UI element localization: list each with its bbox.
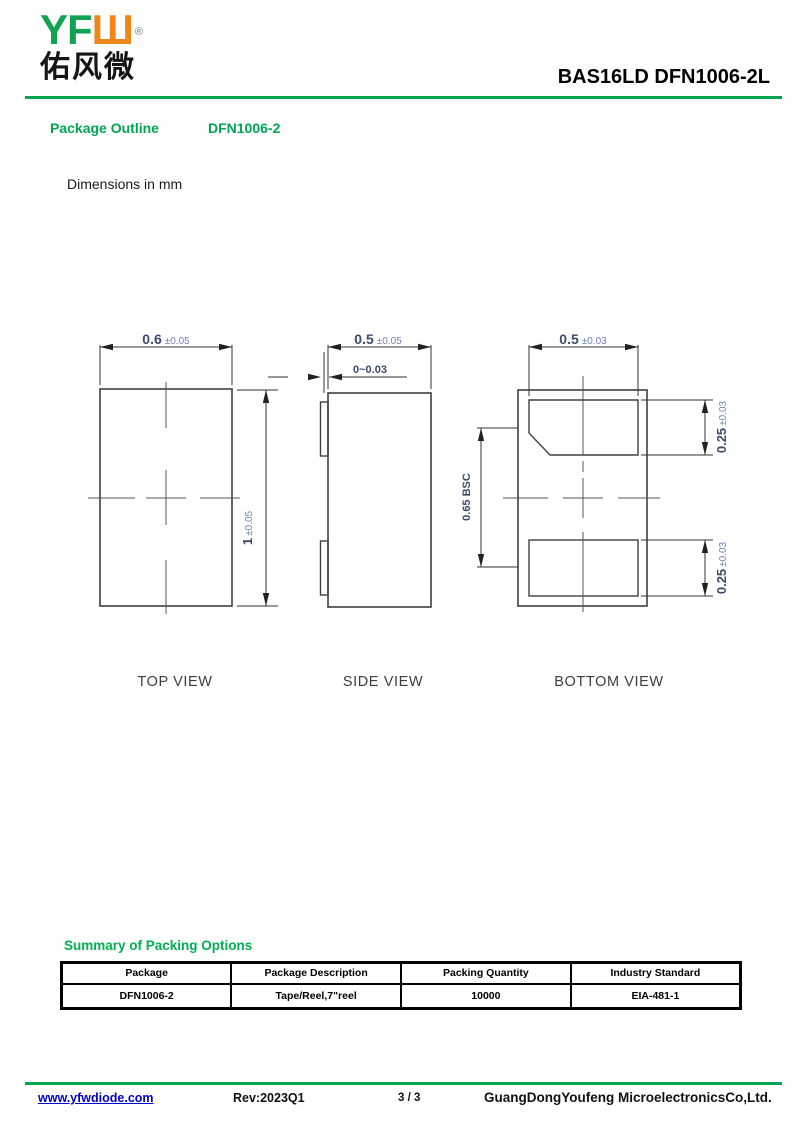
- arrowhead-icon: [328, 344, 341, 350]
- top-view-height-dimension: 1±0.05: [240, 510, 255, 545]
- side-view-body-outline: [328, 393, 431, 607]
- column-header-package: Package: [62, 963, 232, 984]
- page-number: 3 / 3: [398, 1092, 420, 1104]
- top-view-width-dimension-lines: [100, 345, 232, 385]
- company-logo: YFШ® 佑风微: [40, 8, 140, 84]
- side-view-width-dimension: 0.5±0.05: [354, 331, 402, 347]
- registered-trademark-icon: ®: [135, 26, 142, 38]
- header-divider: [25, 96, 782, 99]
- arrowhead-icon: [219, 344, 232, 350]
- bottom-view-width-dimension: 0.5±0.03: [559, 331, 607, 347]
- arrowhead-icon: [478, 554, 484, 567]
- column-header-quantity: Packing Quantity: [401, 963, 571, 984]
- arrowhead-icon: [263, 390, 269, 403]
- arrowhead-icon: [100, 344, 113, 350]
- logo-chinese-name: 佑风微: [40, 52, 140, 84]
- packing-options-heading: Summary of Packing Options: [64, 938, 252, 953]
- website-link[interactable]: www.yfwdiode.com: [38, 1091, 154, 1105]
- arrowhead-icon: [529, 344, 542, 350]
- arrowhead-icon: [329, 374, 342, 380]
- revision-label: Rev:2023Q1: [233, 1091, 305, 1105]
- side-view-terminal-top: [321, 402, 329, 456]
- table-row: DFN1006-2 Tape/Reel,7"reel 10000 EIA-481…: [62, 984, 741, 1009]
- arrowhead-icon: [263, 593, 269, 606]
- arrowhead-icon: [308, 374, 321, 380]
- package-outline-drawing: 0.6±0.05 1±0.05 0.5±0.05 0~0.03: [0, 330, 800, 670]
- bottom-view-drawing: 0.5±0.03 0.65 BSC 0.25±0.03 0.25±0.03: [461, 331, 729, 612]
- datasheet-page: YFШ® 佑风微 BAS16LD DFN1006-2L Package Outl…: [0, 0, 800, 1134]
- top-view-height-dimension-lines: [237, 390, 278, 606]
- logo-wordmark: YFШ®: [40, 8, 140, 52]
- bottom-view-pad1-dimension: 0.25±0.03: [714, 400, 729, 453]
- arrowhead-icon: [702, 540, 708, 553]
- packing-options-table: Package Package Description Packing Quan…: [60, 961, 742, 1010]
- side-view-label: SIDE VIEW: [343, 674, 423, 690]
- bottom-view-label: BOTTOM VIEW: [554, 674, 663, 690]
- column-header-description: Package Description: [231, 963, 401, 984]
- arrowhead-icon: [625, 344, 638, 350]
- top-view-width-dimension: 0.6±0.05: [142, 331, 190, 347]
- package-outline-heading: Package Outline: [50, 120, 159, 136]
- cell-package: DFN1006-2: [62, 984, 232, 1009]
- top-view-drawing: 0.6±0.05 1±0.05: [88, 331, 278, 614]
- logo-w-icon: Ш: [92, 6, 133, 53]
- footer-divider: [25, 1082, 782, 1085]
- bottom-view-pad2-dimension-lines: [641, 540, 713, 596]
- cell-standard: EIA-481-1: [571, 984, 741, 1009]
- company-name: GuangDongYoufeng MicroelectronicsCo,Ltd.: [484, 1090, 772, 1105]
- arrowhead-icon: [702, 400, 708, 413]
- side-view-standoff-dimension: 0~0.03: [353, 364, 387, 376]
- arrowhead-icon: [702, 442, 708, 455]
- arrowhead-icon: [478, 428, 484, 441]
- side-view-drawing: 0.5±0.05 0~0.03: [268, 331, 431, 607]
- top-view-label: TOP VIEW: [137, 674, 212, 690]
- dimensions-note: Dimensions in mm: [67, 176, 182, 192]
- part-number-title: BAS16LD DFN1006-2L: [558, 66, 770, 89]
- bottom-view-pad1-dimension-lines: [641, 400, 713, 455]
- arrowhead-icon: [702, 583, 708, 596]
- side-view-terminal-bottom: [321, 541, 329, 595]
- bottom-view-pitch-dimension: 0.65 BSC: [461, 473, 473, 521]
- logo-yf-text: YF: [40, 6, 92, 53]
- column-header-standard: Industry Standard: [571, 963, 741, 984]
- table-header-row: Package Package Description Packing Quan…: [62, 963, 741, 984]
- cell-quantity: 10000: [401, 984, 571, 1009]
- arrowhead-icon: [418, 344, 431, 350]
- package-name-heading: DFN1006-2: [208, 120, 280, 136]
- cell-description: Tape/Reel,7"reel: [231, 984, 401, 1009]
- bottom-view-pad2-dimension: 0.25±0.03: [714, 541, 729, 594]
